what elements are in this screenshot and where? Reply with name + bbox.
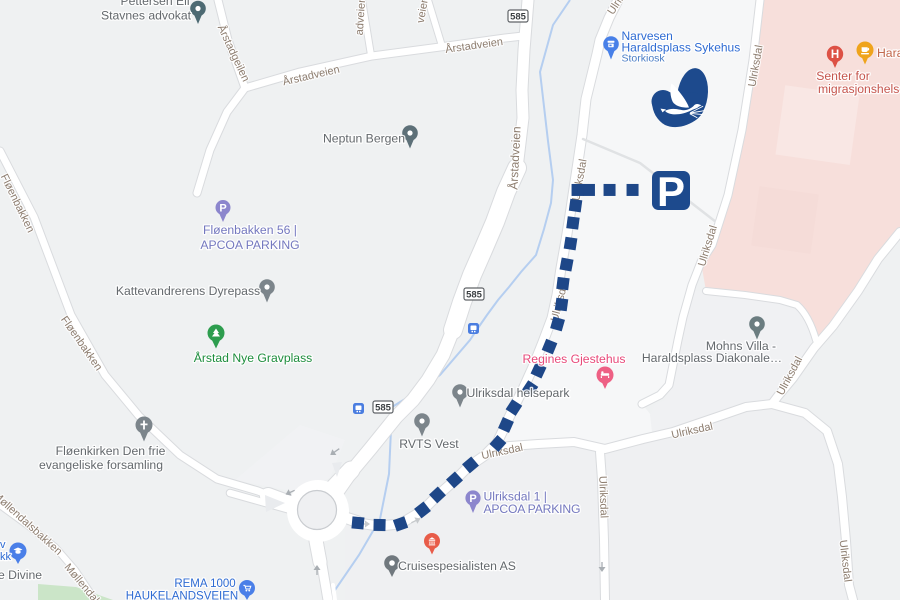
svg-text:Storkiosk: Storkiosk bbox=[622, 53, 666, 65]
svg-text:kk: kk bbox=[0, 551, 12, 563]
svg-text:P: P bbox=[469, 493, 476, 505]
svg-text:Årstad Nye Gravplass: Årstad Nye Gravplass bbox=[194, 350, 313, 365]
svg-text:585: 585 bbox=[375, 403, 392, 414]
svg-text:Senter for: Senter for bbox=[816, 69, 870, 83]
svg-text:RVTS Vest: RVTS Vest bbox=[399, 437, 459, 451]
svg-text:migrasjonshelse: migrasjonshelse bbox=[818, 82, 900, 96]
svg-text:APCOA PARKING: APCOA PARKING bbox=[200, 238, 299, 252]
svg-text:e Divine: e Divine bbox=[0, 568, 42, 582]
svg-text:Neptun Bergen: Neptun Bergen bbox=[323, 132, 405, 146]
svg-text:585: 585 bbox=[466, 290, 483, 301]
svg-text:Stavnes advokat: Stavnes advokat bbox=[101, 9, 192, 23]
svg-text:Ulriksdal helsepark: Ulriksdal helsepark bbox=[467, 386, 571, 400]
svg-text:v: v bbox=[0, 539, 6, 551]
svg-text:Pettersen Eli: Pettersen Eli bbox=[120, 0, 189, 8]
svg-text:APCOA PARKING: APCOA PARKING bbox=[484, 502, 581, 516]
svg-text:Kattevandrerens Dyrepass: Kattevandrerens Dyrepass bbox=[116, 284, 260, 298]
svg-text:Haraldsplass Diakonale…: Haraldsplass Diakonale… bbox=[642, 351, 782, 365]
svg-text:P: P bbox=[657, 168, 685, 215]
svg-text:Hara: Hara bbox=[877, 46, 900, 60]
svg-text:Ulriksdal: Ulriksdal bbox=[596, 476, 609, 519]
svg-text:HAUKELANDSVEIEN: HAUKELANDSVEIEN bbox=[126, 591, 238, 600]
svg-text:REMA 1000: REMA 1000 bbox=[174, 578, 235, 590]
svg-text:Cruisespesialisten AS: Cruisespesialisten AS bbox=[398, 559, 516, 573]
svg-text:Fløenbakken 56 |: Fløenbakken 56 | bbox=[203, 223, 297, 237]
svg-text:Regines Gjestehus: Regines Gjestehus bbox=[523, 352, 626, 366]
svg-text:evangeliske forsamling: evangeliske forsamling bbox=[39, 458, 163, 472]
svg-text:P: P bbox=[219, 203, 226, 215]
svg-text:Fløenkirken Den frie: Fløenkirken Den frie bbox=[56, 444, 166, 458]
svg-text:585: 585 bbox=[510, 12, 527, 23]
svg-text:H: H bbox=[831, 49, 839, 61]
